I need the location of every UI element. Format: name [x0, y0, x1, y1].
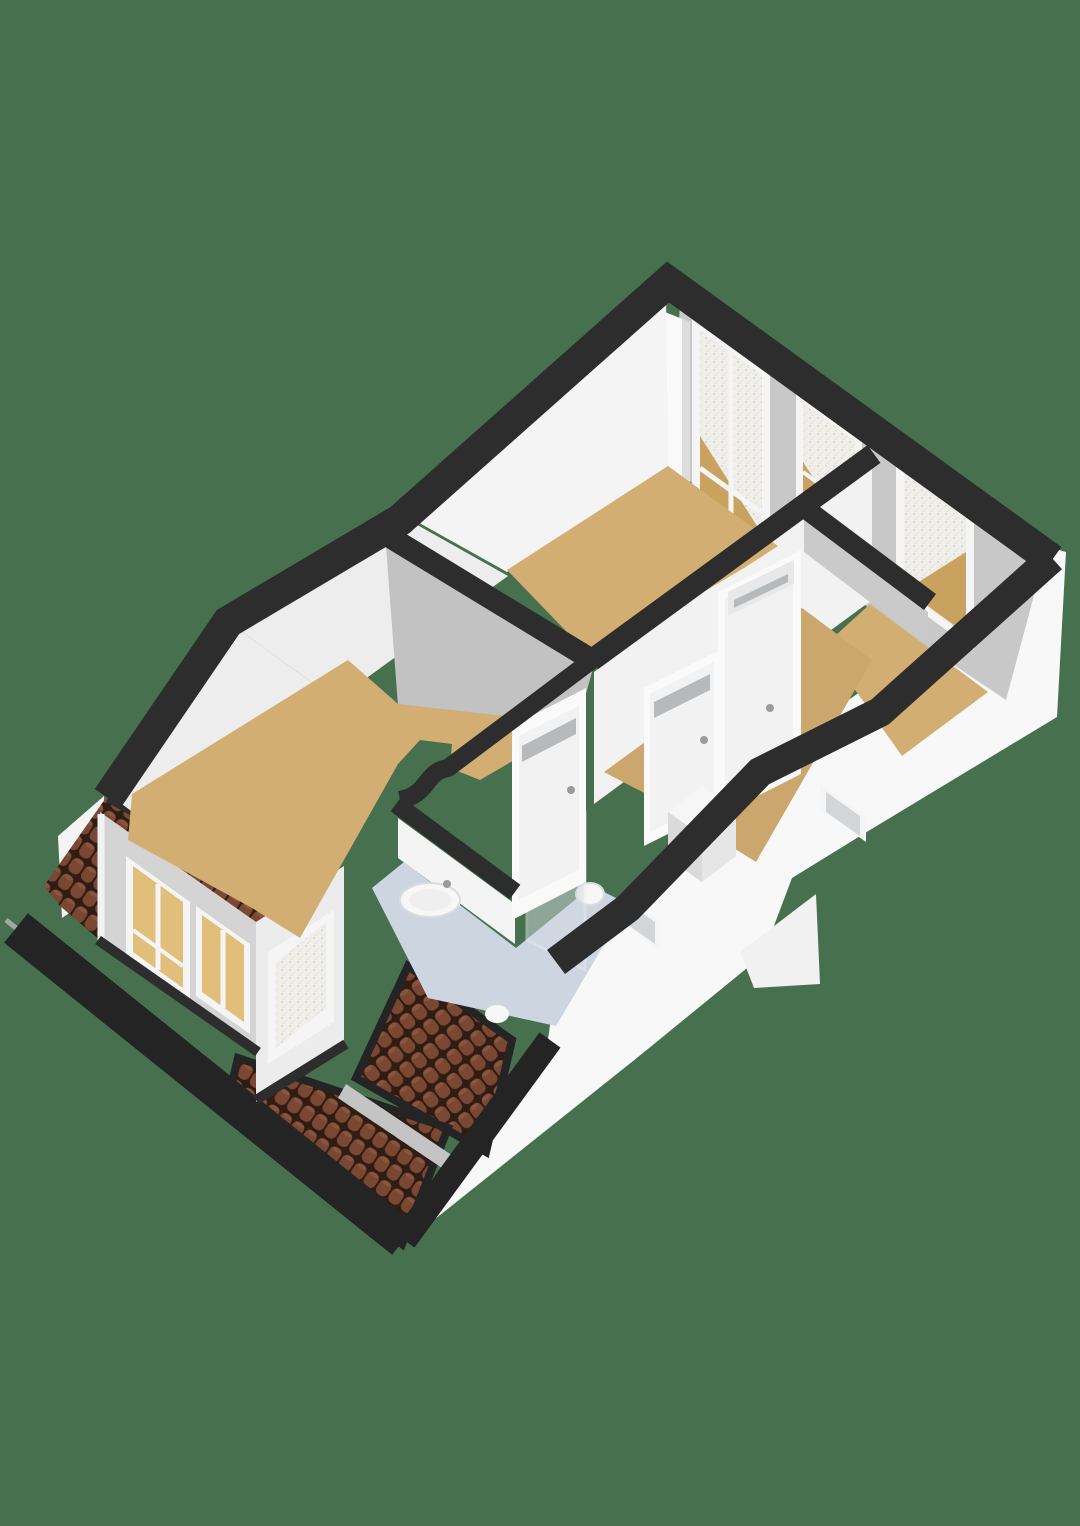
- door-handle: [766, 704, 774, 712]
- chimney-pilaster-edge: [682, 318, 690, 494]
- toilet-bowl-lower: [485, 1005, 509, 1023]
- washbasin-bowl: [409, 889, 451, 911]
- washbasin-faucet: [443, 880, 451, 888]
- floorplan-3d-render: [0, 0, 1080, 1526]
- floorplan-stage: [0, 0, 1080, 1526]
- door-handle: [567, 786, 575, 794]
- door-handle: [700, 736, 708, 744]
